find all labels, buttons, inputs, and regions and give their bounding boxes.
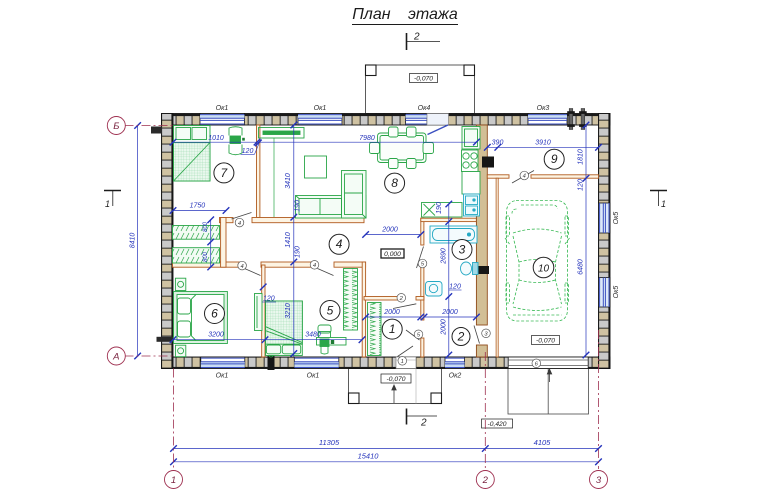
svg-text:-0,070: -0,070: [387, 376, 406, 383]
svg-text:3410: 3410: [285, 173, 292, 189]
svg-text:1: 1: [661, 199, 666, 209]
svg-text:120: 120: [263, 296, 275, 303]
svg-text:1: 1: [171, 475, 176, 486]
svg-text:Ок2: Ок2: [449, 373, 462, 380]
svg-text:Ок1: Ок1: [314, 105, 327, 112]
svg-text:6: 6: [211, 306, 218, 320]
svg-text:2000: 2000: [381, 227, 398, 234]
svg-text:3480: 3480: [305, 332, 321, 339]
svg-text:3: 3: [459, 242, 466, 256]
svg-text:1: 1: [401, 359, 404, 365]
svg-text:1410: 1410: [285, 232, 292, 248]
svg-text:8: 8: [391, 176, 398, 190]
svg-text:5: 5: [327, 303, 334, 317]
svg-text:15410: 15410: [358, 451, 380, 460]
svg-text:3: 3: [596, 475, 602, 486]
svg-text:1: 1: [105, 199, 110, 209]
svg-text:120: 120: [578, 179, 585, 191]
svg-text:120: 120: [449, 284, 461, 291]
svg-text:4: 4: [238, 221, 241, 227]
svg-text:2: 2: [413, 32, 420, 43]
svg-text:План этажа: План этажа: [352, 6, 458, 23]
svg-text:Ок5: Ок5: [613, 286, 620, 299]
svg-text:2: 2: [457, 329, 465, 343]
svg-text:0,000: 0,000: [384, 251, 401, 258]
svg-text:2000: 2000: [441, 309, 458, 316]
svg-text:4: 4: [240, 264, 243, 270]
svg-text:9: 9: [551, 152, 558, 166]
svg-text:2000: 2000: [383, 309, 400, 316]
svg-text:1010: 1010: [208, 135, 224, 142]
svg-text:1810: 1810: [578, 149, 585, 165]
svg-text:Ок4: Ок4: [418, 105, 431, 112]
svg-text:2000: 2000: [440, 319, 447, 336]
svg-text:2: 2: [482, 475, 489, 486]
svg-text:3210: 3210: [285, 303, 292, 319]
svg-text:11305: 11305: [319, 438, 340, 447]
svg-text:4105: 4105: [534, 438, 552, 447]
svg-text:2: 2: [420, 418, 427, 429]
svg-text:-0,070: -0,070: [414, 76, 433, 83]
svg-text:6480: 6480: [578, 259, 585, 275]
svg-text:190: 190: [295, 246, 302, 258]
svg-text:190: 190: [436, 202, 443, 214]
svg-text:2690: 2690: [440, 248, 447, 265]
svg-text:Ок3: Ок3: [537, 105, 550, 112]
svg-text:4: 4: [523, 174, 526, 180]
svg-text:8410: 8410: [130, 233, 137, 249]
svg-text:Ок1: Ок1: [307, 373, 320, 380]
svg-text:390: 390: [492, 139, 504, 146]
svg-text:10: 10: [538, 263, 550, 274]
svg-text:800: 800: [203, 251, 209, 262]
svg-text:120: 120: [242, 148, 254, 155]
svg-text:Ок1: Ок1: [216, 373, 229, 380]
svg-text:-0,420: -0,420: [488, 421, 507, 428]
svg-text:4: 4: [313, 263, 316, 269]
svg-text:Ок1: Ок1: [216, 105, 229, 112]
svg-text:3910: 3910: [535, 139, 551, 146]
svg-text:-0,070: -0,070: [536, 338, 555, 345]
svg-text:3200: 3200: [208, 332, 224, 339]
svg-text:800: 800: [203, 221, 209, 232]
svg-text:7980: 7980: [359, 135, 375, 142]
svg-text:Б: Б: [113, 121, 119, 132]
svg-text:Ок5: Ок5: [613, 212, 620, 225]
svg-text:1: 1: [389, 322, 396, 336]
svg-text:1750: 1750: [190, 203, 206, 210]
svg-text:190: 190: [295, 200, 302, 212]
svg-text:А: А: [112, 352, 119, 363]
svg-text:4: 4: [336, 237, 343, 251]
